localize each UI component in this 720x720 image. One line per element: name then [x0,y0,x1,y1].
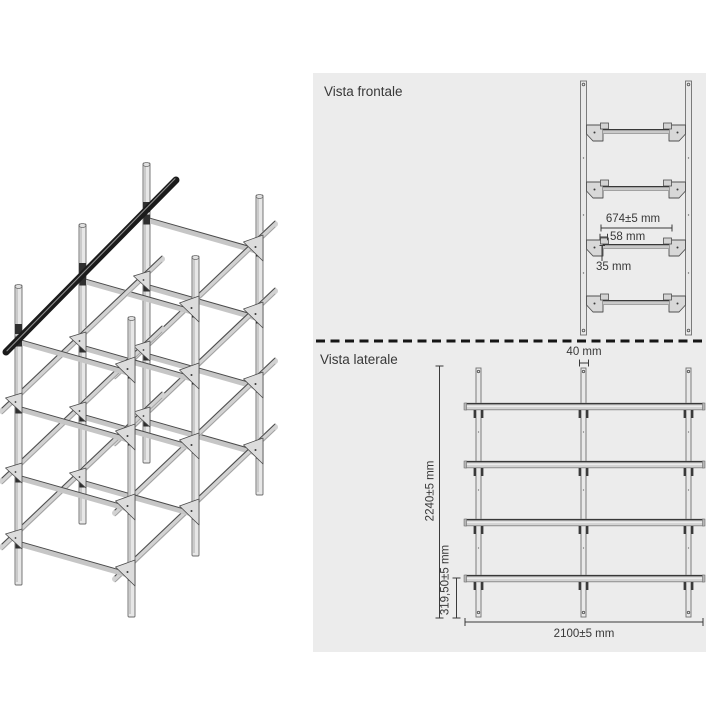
side-view-drawing [436,360,706,627]
hook-offset-dimension-label: 58 mm [610,231,645,244]
front-view-drawing [581,81,692,335]
isometric-rack-drawing [2,163,275,618]
bracket-height-dimension-label: 35 mm [596,261,631,274]
side-view-title: Vista laterale [320,352,398,367]
post-width-dimension-label: 40 mm [549,346,619,359]
technical-drawing-page: Vista frontale 674±5 mm 58 mm 35 mm Vist… [0,0,720,720]
front-view-title: Vista frontale [324,84,403,99]
first-level-height-dimension-label: 319,50±5 mm [440,545,453,615]
total-height-dimension-label: 2240±5 mm [425,461,438,522]
beam-length-dimension-label: 674±5 mm [583,213,683,226]
total-length-dimension-label: 2100±5 mm [534,628,634,641]
post-width-dimension [580,360,589,367]
